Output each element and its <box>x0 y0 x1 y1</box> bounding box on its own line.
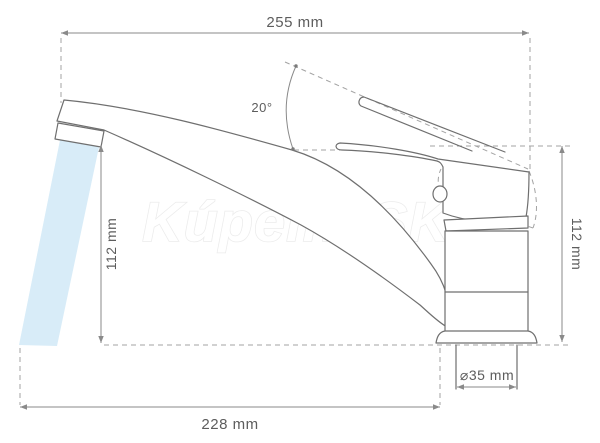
bottom-width-label: 228 mm <box>201 416 258 433</box>
base-flange <box>436 331 537 343</box>
cap-ball-detail <box>433 186 447 202</box>
body <box>445 231 528 332</box>
dimension-left-height: 112 mm <box>101 145 119 343</box>
water-stream <box>19 140 99 346</box>
right-height-label: 112 mm <box>569 218 585 271</box>
dimension-base-diameter: ⌀35 mm <box>457 367 516 387</box>
faucet-dimension-diagram: KúpelneSK <box>0 0 600 443</box>
base-diameter-label: ⌀35 mm <box>460 367 514 383</box>
angle-label: 20° <box>251 100 272 115</box>
dimension-bottom-width: 228 mm <box>20 407 440 433</box>
left-height-label: 112 mm <box>103 218 119 271</box>
angle-annotation: 20° <box>251 64 297 150</box>
top-width-label: 255 mm <box>266 14 323 31</box>
dimension-top-width: 255 mm <box>61 14 529 33</box>
dimension-right-height: 112 mm <box>562 146 585 342</box>
cap-ring <box>444 216 528 231</box>
faucet-technical-drawing-page: KúpelneSK <box>0 0 600 443</box>
